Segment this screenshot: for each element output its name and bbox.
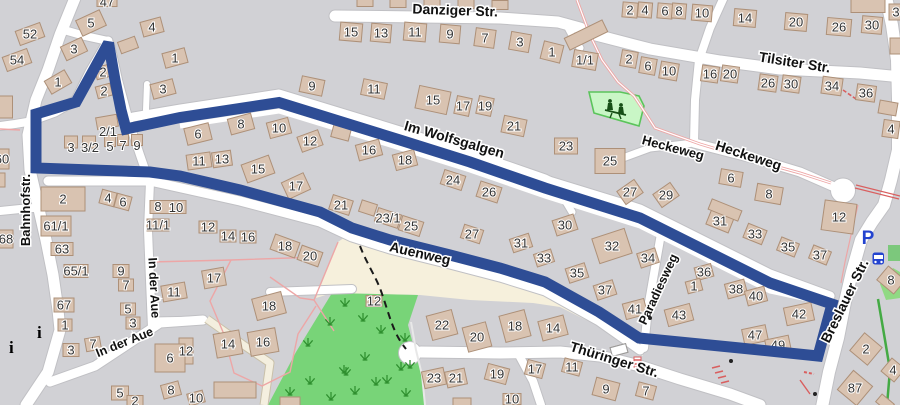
svg-text:Bahnhofstr.: Bahnhofstr. [18,174,33,246]
svg-text:25: 25 [404,219,418,234]
svg-text:2: 2 [862,342,869,357]
svg-text:3: 3 [70,42,77,57]
svg-text:3: 3 [159,82,166,97]
svg-text:9: 9 [446,27,453,42]
svg-text:1/1: 1/1 [576,53,594,68]
svg-text:4: 4 [104,191,111,206]
svg-text:4: 4 [889,363,896,378]
svg-text:36: 36 [697,265,711,280]
svg-text:21: 21 [449,371,463,386]
svg-text:16: 16 [362,143,376,158]
svg-text:63: 63 [55,242,69,257]
svg-text:25: 25 [603,154,617,169]
svg-text:17: 17 [528,362,542,377]
svg-text:30: 30 [784,77,798,92]
svg-text:37: 37 [598,283,612,298]
svg-text:19: 19 [478,99,492,114]
svg-text:34: 34 [641,251,655,266]
svg-text:15: 15 [426,93,440,108]
svg-text:16: 16 [256,335,270,350]
svg-text:i: i [9,338,14,357]
svg-text:2: 2 [59,192,66,207]
svg-text:30: 30 [865,18,879,33]
svg-text:6: 6 [166,351,173,366]
svg-text:5: 5 [116,386,123,401]
svg-text:5: 5 [124,302,131,317]
svg-text:2: 2 [100,84,107,99]
svg-text:5: 5 [87,16,94,31]
svg-text:8: 8 [154,199,161,214]
svg-text:16: 16 [703,67,717,82]
svg-text:4: 4 [641,3,648,18]
svg-text:10: 10 [505,392,519,405]
svg-text:21: 21 [507,119,521,134]
svg-text:15: 15 [251,162,265,177]
svg-text:10: 10 [695,6,709,21]
svg-text:22: 22 [435,318,449,333]
svg-text:68: 68 [0,232,13,247]
svg-text:60: 60 [0,152,9,167]
svg-text:4: 4 [148,20,155,35]
svg-text:P: P [862,228,875,249]
svg-text:18: 18 [262,299,276,314]
svg-text:40: 40 [749,289,763,304]
svg-text:23: 23 [427,371,441,386]
svg-text:27: 27 [465,227,479,242]
svg-text:24: 24 [446,173,460,188]
svg-text:36: 36 [859,86,873,101]
svg-text:13: 13 [374,26,388,41]
svg-text:27: 27 [623,185,637,200]
svg-text:2: 2 [131,394,138,405]
svg-text:11: 11 [192,154,206,169]
svg-text:31: 31 [713,214,727,229]
svg-text:3: 3 [67,140,74,155]
svg-text:11: 11 [167,285,181,300]
svg-text:47: 47 [748,328,762,343]
svg-text:1: 1 [61,318,68,333]
svg-text:10: 10 [662,64,676,79]
svg-text:2/1: 2/1 [99,124,117,139]
svg-text:67: 67 [57,298,71,313]
svg-text:16: 16 [241,230,255,245]
svg-text:43: 43 [672,308,686,323]
svg-text:35: 35 [781,240,795,255]
svg-text:6: 6 [119,195,126,210]
svg-text:1: 1 [54,75,61,90]
svg-text:12: 12 [179,344,193,359]
svg-text:20: 20 [723,67,737,82]
svg-text:20: 20 [470,330,484,345]
svg-text:9: 9 [602,382,609,397]
svg-text:Danziger Str.: Danziger Str. [412,1,498,20]
svg-text:6: 6 [727,171,734,186]
svg-text:33: 33 [537,251,551,266]
svg-text:6: 6 [194,127,201,142]
svg-text:32: 32 [605,239,619,254]
svg-text:1: 1 [548,45,555,60]
svg-text:37: 37 [813,248,827,263]
svg-text:14: 14 [546,321,560,336]
svg-text:1: 1 [690,279,697,294]
svg-text:3: 3 [516,35,523,50]
svg-text:17: 17 [289,179,303,194]
svg-text:20: 20 [789,15,803,30]
svg-text:34: 34 [825,79,839,94]
svg-text:14: 14 [738,11,752,26]
svg-text:5: 5 [106,139,113,154]
svg-text:2: 2 [626,3,633,18]
svg-text:23/1: 23/1 [375,211,400,226]
svg-text:18: 18 [508,319,522,334]
svg-text:8: 8 [167,383,174,398]
svg-text:9: 9 [117,264,124,279]
svg-text:2: 2 [625,52,632,67]
svg-text:7: 7 [122,278,129,293]
svg-text:65/1: 65/1 [63,264,88,279]
svg-text:10: 10 [272,121,286,136]
svg-text:47: 47 [100,0,114,10]
svg-text:21: 21 [334,198,348,213]
svg-text:26: 26 [832,20,846,35]
svg-text:26: 26 [482,185,496,200]
svg-text:8: 8 [765,187,772,202]
svg-text:18: 18 [278,239,292,254]
svg-text:3: 3 [67,343,74,358]
svg-text:11: 11 [565,360,579,375]
svg-text:20: 20 [303,249,317,264]
svg-text:10: 10 [169,200,183,215]
svg-text:61/1: 61/1 [43,219,68,234]
svg-text:54: 54 [10,53,24,68]
svg-text:13: 13 [215,152,229,167]
svg-text:17: 17 [207,271,221,286]
svg-text:23: 23 [559,139,573,154]
svg-text:8: 8 [675,4,682,19]
svg-text:11: 11 [367,82,381,97]
svg-text:19: 19 [490,367,504,382]
svg-text:11: 11 [408,25,422,40]
svg-text:33: 33 [748,227,762,242]
svg-text:29: 29 [659,188,673,203]
svg-text:17: 17 [456,99,470,114]
svg-text:7: 7 [642,384,649,399]
svg-text:12: 12 [367,294,381,309]
svg-text:15: 15 [344,25,358,40]
svg-text:4: 4 [887,122,894,137]
svg-text:1: 1 [171,51,178,66]
svg-text:12: 12 [832,210,846,225]
svg-text:87: 87 [848,381,862,396]
svg-text:14: 14 [221,337,235,352]
svg-text:8: 8 [237,117,244,132]
svg-text:10: 10 [189,391,203,405]
svg-text:42: 42 [792,307,806,322]
svg-text:12: 12 [303,134,317,149]
svg-text:9: 9 [308,79,315,94]
svg-text:30: 30 [558,218,572,233]
svg-text:31: 31 [514,236,528,251]
svg-text:3: 3 [892,5,899,20]
svg-text:12: 12 [201,220,215,235]
svg-text:52: 52 [23,27,37,42]
svg-text:3/2: 3/2 [81,140,99,155]
svg-text:3: 3 [129,316,136,331]
svg-text:8: 8 [887,273,894,288]
svg-text:38: 38 [729,282,743,297]
svg-text:6: 6 [661,4,668,19]
svg-text:26: 26 [761,76,775,91]
svg-text:9: 9 [133,138,140,153]
svg-text:11/1: 11/1 [146,218,170,233]
svg-text:7: 7 [119,138,126,153]
svg-text:7: 7 [481,31,488,46]
svg-text:6: 6 [644,59,651,74]
svg-text:18: 18 [398,153,412,168]
svg-text:i: i [37,323,42,342]
svg-text:14: 14 [221,229,235,244]
svg-text:35: 35 [570,266,584,281]
